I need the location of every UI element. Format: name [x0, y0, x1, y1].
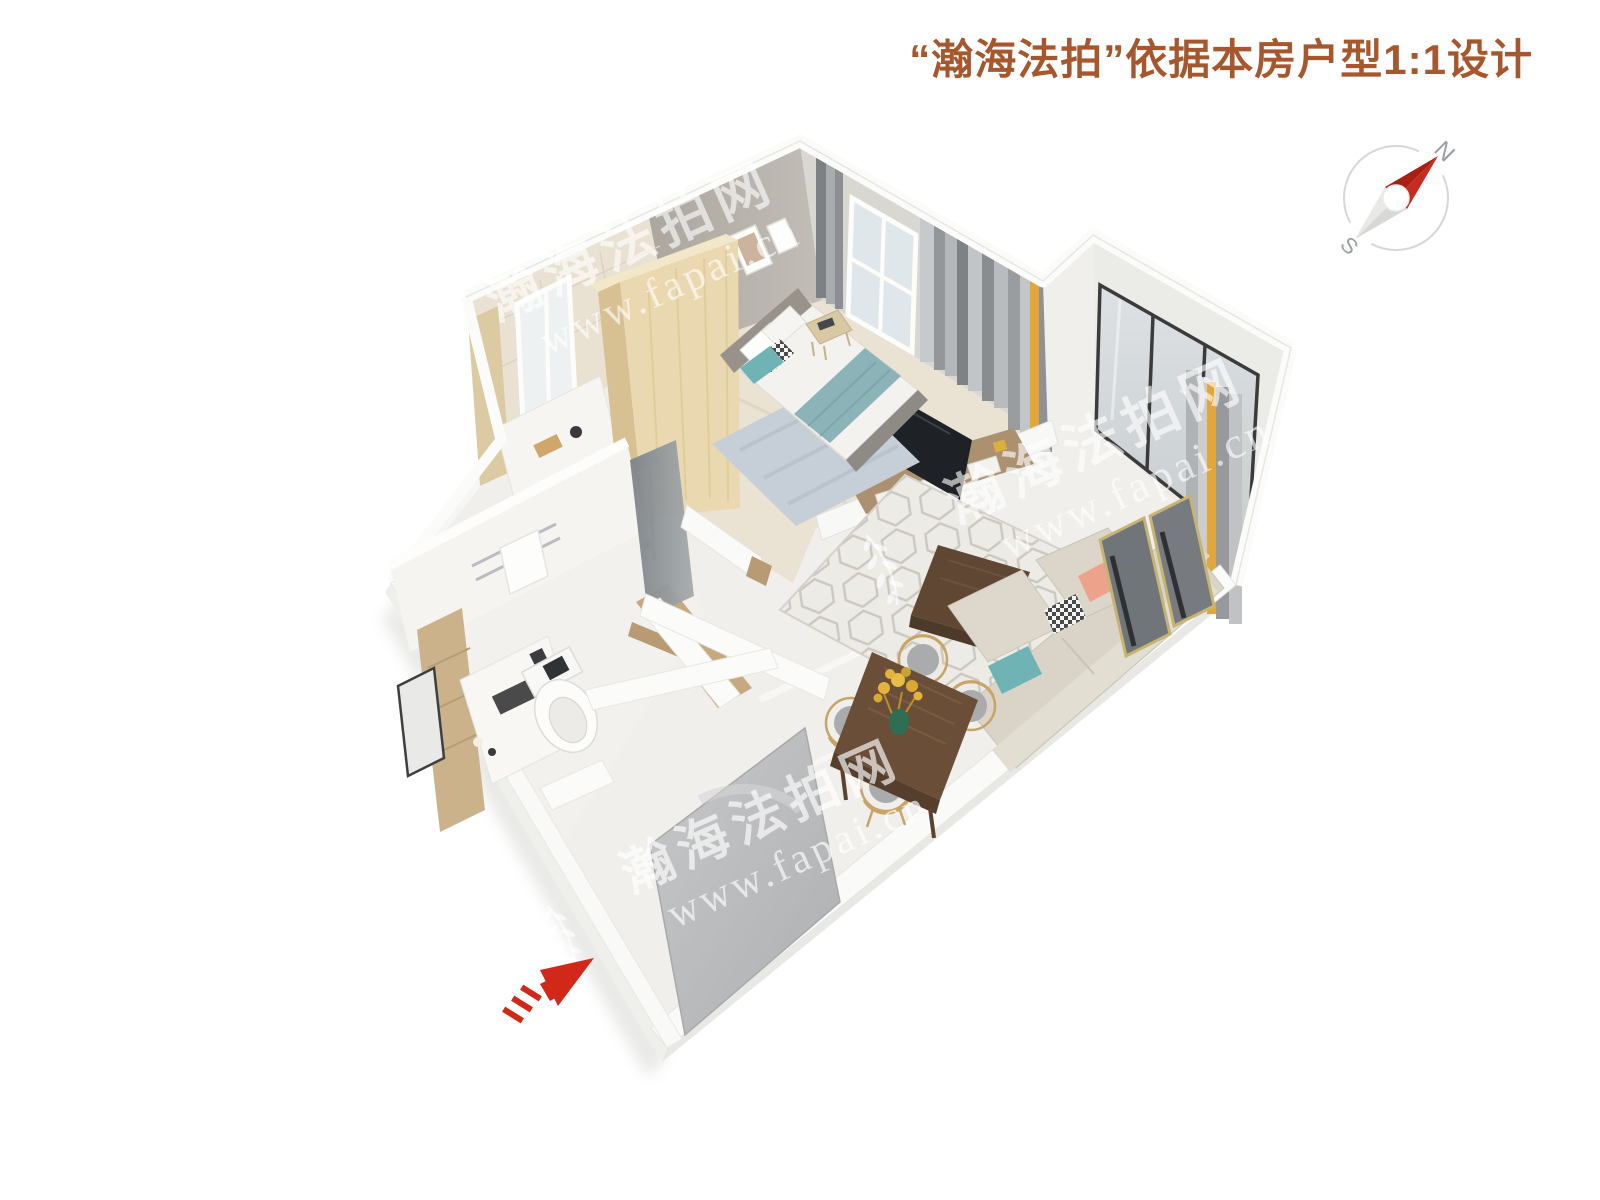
- kettle: [570, 426, 582, 438]
- compass-icon: N S: [1335, 136, 1460, 260]
- page-title: “瀚海法拍”依据本房户型1:1设计: [909, 36, 1533, 83]
- vase: [889, 709, 909, 735]
- floorplan-render-svg: 瀚海法拍网 www.fapai.cn 瀚海法拍网 www.fapai.cn 瀚海…: [0, 0, 1600, 1200]
- toiletry-bottle: [473, 737, 483, 747]
- entrance-arrow-icon: [502, 958, 594, 1023]
- bedroom-curtain-left: [816, 152, 843, 309]
- floorplan-screenshot: 瀚海法拍网 www.fapai.cn 瀚海法拍网 www.fapai.cn 瀚海…: [0, 0, 1600, 1200]
